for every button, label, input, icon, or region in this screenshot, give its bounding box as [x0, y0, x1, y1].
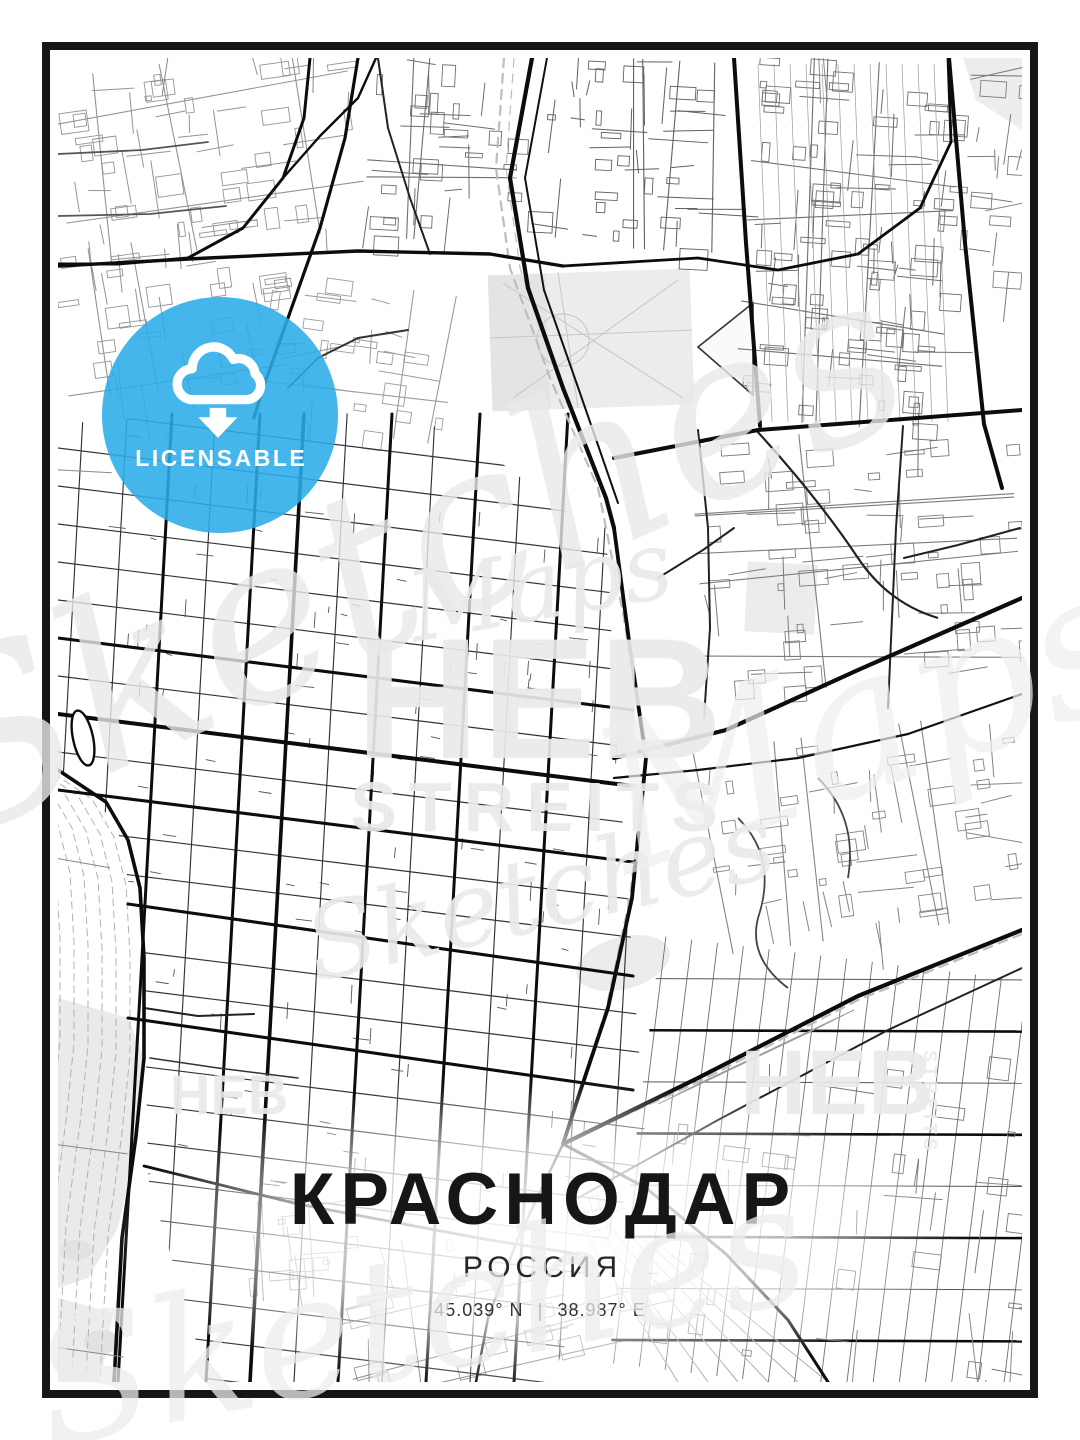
- longitude: 38.987° E: [557, 1300, 645, 1320]
- download-arrow: [198, 408, 237, 438]
- cloud-download-icon: [158, 313, 282, 443]
- badge-label: LICENSABLE: [133, 445, 307, 472]
- poster-canvas: Maps HEB STREITS Sketches HEBSTREITS HEB…: [0, 0, 1080, 1440]
- coordinates-separator: |: [538, 1301, 544, 1323]
- licensable-badge: LICENSABLE: [102, 297, 338, 533]
- coordinates: 45.039° N|38.987° E: [0, 1300, 1080, 1322]
- city-title: КРАСНОДАР: [0, 1160, 1080, 1240]
- latitude: 45.039° N: [434, 1300, 523, 1320]
- country-subtitle: РОССИЯ: [0, 1251, 1080, 1285]
- cloud-outline: [177, 347, 260, 400]
